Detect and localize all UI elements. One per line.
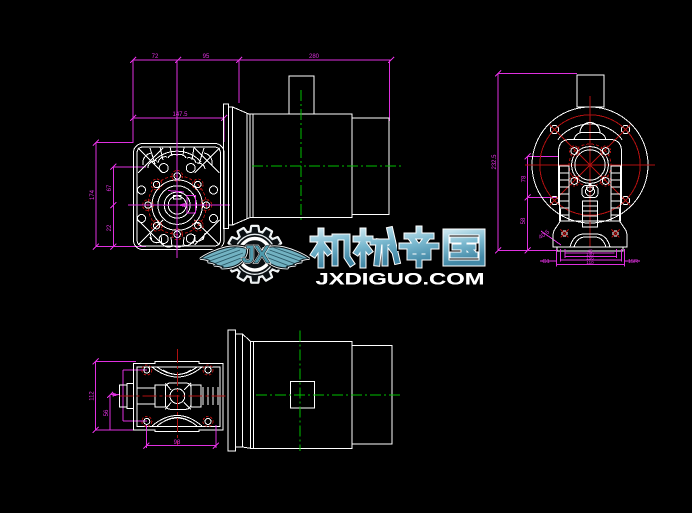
svg-text:78: 78 [522,175,528,182]
svg-text:15R: 15R [628,259,638,265]
svg-text:G1: G1 [542,259,549,265]
svg-text:56: 56 [104,409,110,416]
svg-text:280: 280 [309,54,320,60]
svg-text:JX: JX [241,241,270,269]
svg-text:112: 112 [90,391,96,401]
svg-text:232.5: 232.5 [492,154,498,170]
svg-text:147.5: 147.5 [172,112,188,118]
svg-text:98: 98 [174,440,181,446]
svg-text:22: 22 [107,224,113,231]
svg-text:95: 95 [203,54,210,60]
svg-text:JXDIGUO.COM: JXDIGUO.COM [316,270,485,289]
svg-text:72: 72 [152,54,159,60]
svg-text:67: 67 [107,184,113,191]
svg-text:174: 174 [90,189,96,200]
svg-text:110: 110 [586,260,594,265]
svg-text:58: 58 [521,217,527,224]
